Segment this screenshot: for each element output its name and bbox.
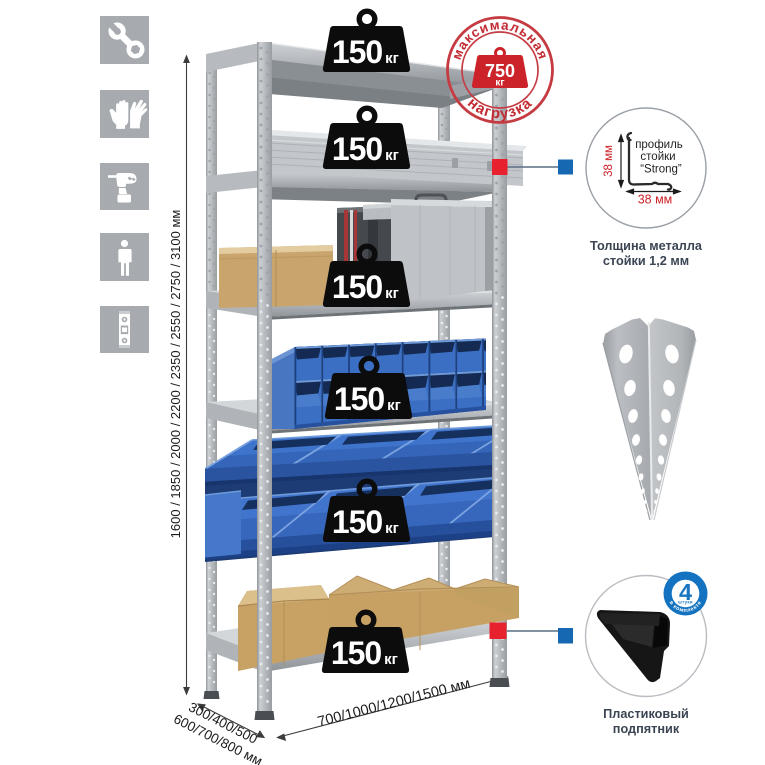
svg-text:кг: кг — [385, 285, 399, 302]
svg-text:кг: кг — [385, 520, 399, 537]
svg-text:150: 150 — [332, 269, 383, 305]
svg-text:профиль: профиль — [635, 139, 683, 151]
svg-text:150: 150 — [334, 381, 385, 417]
svg-text:стойки: стойки — [640, 151, 675, 163]
svg-text:“Strong”: “Strong” — [640, 164, 682, 176]
svg-text:стойки 1,2 мм: стойки 1,2 мм — [603, 254, 689, 268]
svg-text:кг: кг — [495, 78, 504, 89]
svg-text:150: 150 — [332, 34, 383, 70]
svg-text:38 мм: 38 мм — [638, 193, 673, 207]
svg-text:Пластиковый: Пластиковый — [603, 707, 689, 721]
svg-text:подпятник: подпятник — [613, 722, 680, 736]
svg-text:кг: кг — [384, 651, 398, 668]
svg-text:38 мм: 38 мм — [603, 145, 615, 177]
svg-text:150: 150 — [332, 504, 383, 540]
svg-text:штуки: штуки — [678, 600, 693, 605]
svg-text:кг: кг — [387, 397, 401, 414]
svg-text:Толщина металла: Толщина металла — [590, 239, 703, 253]
svg-text:150: 150 — [332, 131, 383, 167]
svg-text:кг: кг — [385, 50, 399, 67]
svg-text:кг: кг — [385, 147, 399, 164]
svg-text:150: 150 — [331, 635, 382, 671]
svg-text:1600 / 1850 / 2000 / 2200 / 23: 1600 / 1850 / 2000 / 2200 / 2350 / 2550 … — [168, 210, 183, 539]
